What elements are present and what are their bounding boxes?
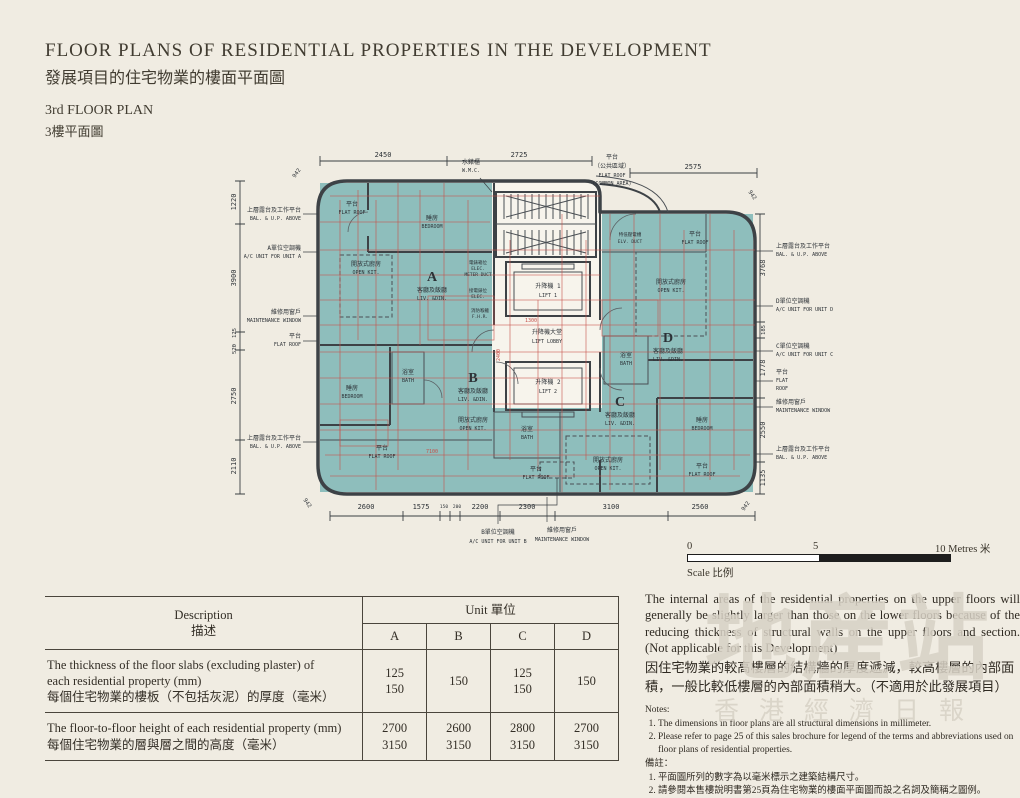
dim-left-3900: 3900 — [230, 270, 238, 287]
label-open-kitchen-c-en: OPEN KIT. — [594, 466, 621, 472]
label-lift2-en: LIFT 2 — [539, 389, 557, 395]
dim-bottom-3100: 3100 — [603, 503, 620, 511]
callout-bal-up-left1-zh: 上層露台及工作平台 — [247, 206, 301, 214]
label-flat-roof-d-zh: 平台 — [689, 230, 701, 238]
dim-bottom-200: 200 — [453, 504, 461, 510]
dim-radius-br: 942 — [741, 501, 752, 513]
callout-ac-unit-d-en: A/C UNIT FOR UNIT D — [776, 307, 833, 313]
notes-list-en: The dimensions in floor plans are all st… — [645, 718, 1020, 757]
label-lift1-en: LIFT 1 — [539, 293, 557, 299]
label-common-roof-zh1: 平台 — [606, 153, 618, 161]
unit-c-letter: C — [615, 395, 625, 410]
unit-b-letter: B — [468, 371, 477, 386]
label-bath-cd-zh: 浴室 — [620, 351, 632, 359]
dim-top-2575: 2575 — [685, 163, 702, 171]
label-open-kitchen-a-zh: 開放式廚房 — [351, 260, 381, 268]
label-bath-center-zh: 浴室 — [521, 425, 533, 433]
dim-left-520: 520 — [232, 344, 238, 354]
label-flat-roof-d-en: FLAT ROOF — [681, 240, 708, 246]
dim-radius-tl: 942 — [292, 168, 303, 180]
dim-bottom-1575: 1575 — [413, 503, 430, 511]
label-elec-zh: 接電錶位 — [469, 287, 487, 294]
dim-radius-tr: 942 — [747, 190, 758, 202]
table-col-c: C — [491, 624, 555, 649]
label-bedroom-a-zh: 睡房 — [426, 214, 438, 222]
callout-ac-unit-a-en: A/C UNIT FOR UNIT A — [244, 254, 301, 260]
floor-plan-drawing: 1300 2400 7100 2450 2725 2575 1220 3900 … — [0, 0, 1020, 580]
label-lift1-zh: 升降機 1 — [535, 282, 561, 290]
callout-flat-roof-right-zh: 平台 — [776, 368, 788, 376]
callout-bal-up-right1-zh: 上層露台及工作平台 — [776, 242, 830, 250]
dim-top-2450: 2450 — [375, 151, 392, 159]
label-flat-roof-cr-zh: 平台 — [696, 462, 708, 470]
label-open-kitchen-b-en: OPEN KIT. — [459, 426, 486, 432]
row1-value-b: 150 — [427, 649, 491, 713]
label-flat-roof-b-zh: 平台 — [376, 444, 388, 452]
red-dim-2400: 2400 — [496, 349, 502, 361]
dim-right-2550: 2550 — [759, 422, 767, 439]
label-flat-roof-cr-en: FLAT ROOF — [688, 472, 715, 478]
dim-left-2110: 2110 — [230, 458, 238, 475]
callout-ac-unit-b-zh: B單位空調機 — [481, 528, 515, 536]
label-flat-roof-c-zh: 平台 — [530, 465, 542, 473]
dim-bottom-2300: 2300 — [519, 503, 536, 511]
dim-bottom-150: 150 — [440, 504, 448, 510]
label-open-kitchen-c-zh: 開放式廚房 — [593, 456, 623, 464]
dim-right-3768: 3768 — [759, 260, 767, 277]
row2-value-c: 2800 3150 — [491, 713, 555, 761]
callout-flat-roof-left-zh: 平台 — [289, 332, 301, 340]
callout-flat-roof-right-en1: FLAT — [776, 378, 788, 384]
callout-ac-unit-c-en: A/C UNIT FOR UNIT C — [776, 352, 833, 358]
label-common-roof-en2: (COMMON AREA) — [592, 181, 631, 187]
dim-right-185: 185 — [761, 325, 767, 335]
label-bedroom-c-zh: 睡房 — [696, 416, 708, 424]
dim-top-2725: 2725 — [511, 151, 528, 159]
table-unit-header: Unit 單位 — [363, 597, 619, 624]
label-open-kitchen-d-en: OPEN KIT. — [657, 288, 684, 294]
unit-a-letter: A — [427, 270, 438, 285]
callout-maintenance-right-zh: 維修用窗戶 — [776, 398, 806, 406]
label-flat-roof-a-zh: 平台 — [346, 200, 358, 208]
label-bath-b-zh: 浴室 — [402, 368, 414, 376]
callout-flat-roof-right-en2: ROOF — [776, 386, 788, 392]
callout-ac-unit-a-zh: A單位空調機 — [267, 244, 301, 252]
label-lift-lobby-zh: 升降機大堂 — [532, 328, 562, 336]
note-zh-1: 平面圖所列的數字為以毫米標示之建築結構尺寸。 — [658, 772, 1020, 785]
label-living-c-en: LIV. &DIN. — [605, 421, 635, 427]
label-fire-hose-zh: 消防喉轆 — [471, 307, 489, 314]
row1-value-c: 125 150 — [491, 649, 555, 713]
label-open-kitchen-a-en: OPEN KIT. — [352, 270, 379, 276]
callout-maintenance-left-zh: 維修用窗戶 — [271, 308, 301, 316]
row2-description: The floor-to-floor height of each reside… — [45, 713, 363, 761]
label-elec-en: ELEC. — [471, 294, 485, 300]
callout-maintenance-right-en: MAINTENANCE WINDOW — [776, 408, 831, 414]
label-bedroom-b-zh: 睡房 — [346, 384, 358, 392]
callout-maintenance-left-en: MAINTENANCE WINDOW — [247, 318, 302, 324]
left-callouts: 上層露台及工作平台 BAL. & U.P. ABOVE A單位空調機 A/C U… — [244, 206, 302, 450]
row2-value-b: 2600 3150 — [427, 713, 491, 761]
dim-bottom-2560: 2560 — [692, 503, 709, 511]
spec-table: Description 描述 Unit 單位 A B C D The thick… — [45, 596, 619, 761]
label-living-b-en: LIV. &DIN. — [458, 397, 488, 403]
staircase — [496, 192, 596, 257]
label-wmc-zh: 水錶櫃 — [462, 158, 480, 166]
label-flat-roof-a-en: FLAT ROOF — [338, 210, 365, 216]
label-flat-roof-b-en: FLAT ROOF — [368, 454, 395, 460]
label-open-kitchen-d-zh: 開放式廚房 — [656, 278, 686, 286]
label-lift2-zh: 升降機 2 — [535, 378, 561, 386]
table-col-a: A — [363, 624, 427, 649]
label-living-c-zh: 客廳及飯廳 — [605, 411, 635, 419]
table-col-d: D — [555, 624, 619, 649]
table-desc-header: Description 描述 — [45, 597, 363, 650]
callout-bal-up-left1-en: BAL. & U.P. ABOVE — [250, 216, 301, 222]
callout-ac-unit-d-zh: D單位空調機 — [776, 297, 810, 305]
label-bath-center-en: BATH — [521, 435, 533, 441]
callout-flat-roof-left-en: FLAT ROOF — [274, 342, 301, 348]
notes-title-zh: 備註： — [645, 758, 1020, 771]
label-bedroom-b-en: BEDROOM — [341, 394, 362, 400]
callout-bal-up-right2-en: BAL. & U.P. ABOVE — [776, 455, 827, 461]
unit-d-letter: D — [663, 331, 673, 346]
label-elv-en: ELV. DUCT — [618, 239, 643, 245]
table-row-floor-height: The floor-to-floor height of each reside… — [45, 713, 619, 761]
dim-bottom-2600: 2600 — [358, 503, 375, 511]
label-elec-meter-zh: 電錶箱位 — [469, 259, 487, 266]
notes-block: Notes: The dimensions in floor plans are… — [645, 704, 1020, 798]
scale-bar-graphic — [687, 554, 951, 562]
label-living-d-zh: 客廳及飯廳 — [653, 347, 683, 355]
callout-maintenance-bottom-en: MAINTENANCE WINDOW — [535, 537, 590, 543]
common-flat-roof-parapet — [600, 184, 660, 212]
right-callouts: 上層露台及工作平台 BAL. & U.P. ABOVE D單位空調機 A/C U… — [776, 242, 833, 461]
label-flat-roof-c-en: FLAT ROOF — [522, 475, 549, 481]
label-living-a-zh: 客廳及飯廳 — [417, 286, 447, 294]
dim-radius-bl: 942 — [302, 498, 313, 510]
note-en-1: The dimensions in floor plans are all st… — [658, 718, 1020, 731]
callout-ac-unit-c-zh: C單位空調機 — [776, 342, 810, 350]
callout-ac-unit-b-en: A/C UNIT FOR UNIT B — [469, 539, 526, 545]
label-fire-hose-en: F.H.R. — [472, 314, 488, 320]
red-dim-7100: 7100 — [426, 449, 438, 455]
label-common-roof-zh2: （公共區域） — [594, 162, 630, 170]
scale-caption: Scale 比例 — [687, 565, 987, 580]
label-common-roof-en1: FLAT ROOF — [598, 173, 625, 179]
callout-bal-up-left2-en: BAL. & U.P. ABOVE — [250, 444, 301, 450]
label-bedroom-a-en: BEDROOM — [421, 224, 442, 230]
table-row-slab-thickness: The thickness of the floor slabs (exclud… — [45, 649, 619, 713]
red-dim-1300: 1300 — [525, 318, 537, 324]
label-elec-meter-en1: ELEC. — [471, 266, 485, 272]
dim-left-125: 125 — [232, 328, 238, 338]
dim-left-1220: 1220 — [230, 194, 238, 211]
row2-value-d: 2700 3150 — [555, 713, 619, 761]
dim-left-2750: 2750 — [230, 388, 238, 405]
dim-right-1135: 1135 — [759, 470, 767, 487]
row1-description: The thickness of the floor slabs (exclud… — [45, 649, 363, 713]
label-living-d-en: LIV. &DIN. — [653, 357, 683, 363]
dim-bottom-2200: 2200 — [472, 503, 489, 511]
label-open-kitchen-b-zh: 開放式廚房 — [458, 416, 488, 424]
scale-bar: 0 5 10 Metres 米 Scale 比例 — [687, 541, 987, 580]
notes-title-en: Notes: — [645, 704, 1020, 717]
callout-bal-up-right1-en: BAL. & U.P. ABOVE — [776, 252, 827, 258]
row1-value-d: 150 — [555, 649, 619, 713]
label-elec-meter-en2: METER DUCT — [464, 272, 491, 278]
callout-bal-up-left2-zh: 上層露台及工作平台 — [247, 434, 301, 442]
label-living-a-en: LIV. &DIN. — [417, 296, 447, 302]
scale-tick-0: 0 — [687, 541, 692, 552]
label-bath-b-en: BATH — [402, 378, 414, 384]
label-lift-lobby-en: LIFT LOBBY — [532, 339, 562, 345]
label-wmc-en: W.M.C. — [462, 168, 480, 174]
info-paragraph-zh: 因住宅物業的較高樓層的結構牆的厚度遞減，較高樓層的內部面積，一般比較低樓層的內部… — [645, 659, 1020, 696]
label-living-b-zh: 客廳及飯廳 — [458, 387, 488, 395]
note-zh-2: 請參閱本售樓說明書第25頁為住宅物業的樓面平面圖而設之名詞及簡稱之圖例。 — [658, 785, 1020, 798]
callout-bal-up-right2-zh: 上層露台及工作平台 — [776, 445, 830, 453]
label-bath-cd-en: BATH — [620, 361, 632, 367]
row2-value-a: 2700 3150 — [363, 713, 427, 761]
callout-maintenance-bottom-zh: 維修用窗戶 — [547, 526, 577, 534]
scale-tick-5: 5 — [813, 541, 818, 552]
row1-value-a: 125 150 — [363, 649, 427, 713]
table-col-b: B — [427, 624, 491, 649]
notes-list-zh: 平面圖所列的數字為以毫米標示之建築結構尺寸。 請參閱本售樓說明書第25頁為住宅物… — [645, 772, 1020, 798]
note-en-2: Please refer to page 25 of this sales br… — [658, 731, 1020, 757]
label-bedroom-c-en: BEDROOM — [691, 426, 712, 432]
dim-right-1778: 1778 — [759, 360, 767, 377]
label-elv-zh: 特低壓電槽 — [619, 231, 642, 238]
info-block: The internal areas of the residential pr… — [645, 591, 1020, 798]
info-paragraph-en: The internal areas of the residential pr… — [645, 591, 1020, 656]
